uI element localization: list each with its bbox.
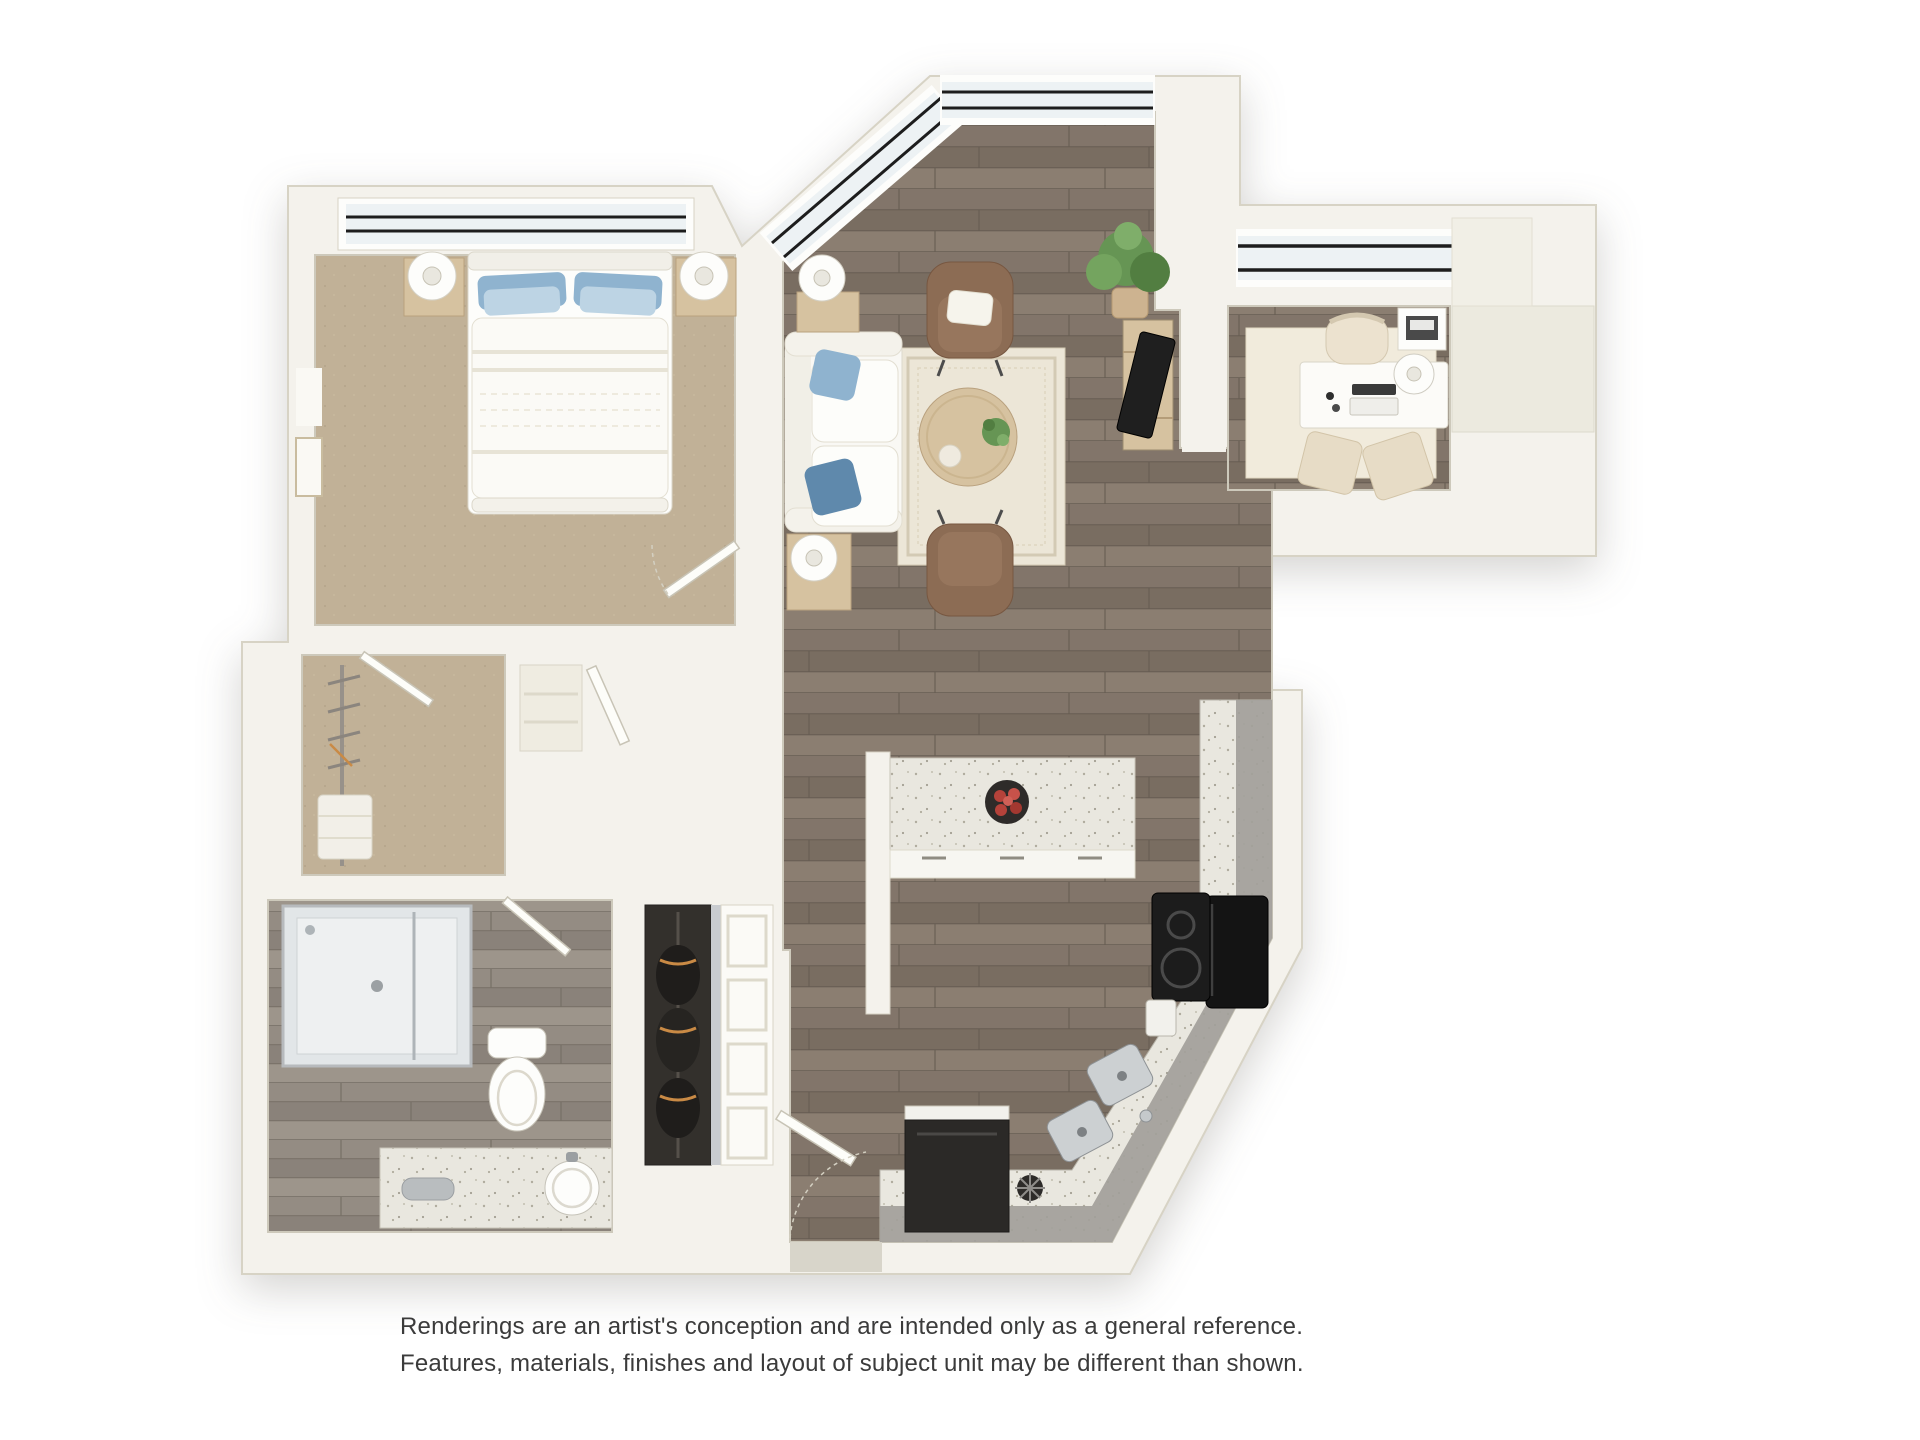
lamp-finial (423, 267, 441, 285)
toilet-tank (488, 1028, 546, 1058)
vanity (380, 1148, 612, 1228)
bedroom (296, 198, 739, 625)
printer-stand (1398, 308, 1446, 350)
glass-shower (283, 906, 471, 1066)
den-wall-mass (1452, 306, 1594, 432)
disclaimer-line-1: Renderings are an artist's conception an… (400, 1308, 1520, 1345)
framed-art-icon (296, 368, 322, 426)
chair-seat (938, 532, 1002, 586)
media-console (1116, 320, 1176, 450)
toaster-icon (1146, 1000, 1176, 1036)
queen-bed (468, 252, 672, 514)
tufted-sofa (785, 332, 902, 532)
shower-head-icon (305, 925, 315, 935)
chair-seat (1326, 316, 1388, 364)
plant-foliage (1130, 252, 1170, 292)
interior-wall (1182, 112, 1226, 452)
paneled-closet-doors (721, 905, 773, 1165)
throw-pillow-blue (808, 348, 863, 403)
laptop-keyboard (1350, 398, 1398, 415)
floor-plan-rendering (0, 0, 1920, 1440)
framed-art-icon (296, 438, 322, 496)
drain-icon (1117, 1071, 1127, 1081)
lamp-finial (814, 270, 830, 286)
peninsula-wall (866, 752, 890, 1014)
disclaimer: Renderings are an artist's conception an… (400, 1308, 1520, 1382)
mug-icon (1326, 392, 1334, 400)
plant-foliage (1086, 254, 1122, 290)
laptop-screen (1352, 384, 1396, 395)
fruit-bowl (985, 780, 1029, 824)
headboard (468, 252, 672, 270)
plant-leaf (997, 434, 1009, 446)
toilet-icon (488, 1028, 546, 1131)
walk-in-closet (302, 652, 505, 875)
plant-foliage (1114, 222, 1142, 250)
pillow-blue-light (483, 286, 560, 316)
hanging-clothes (656, 945, 700, 1138)
desk-chair (1326, 315, 1388, 364)
mirror-edge (711, 905, 721, 1165)
entry-threshold (790, 1242, 882, 1272)
disclaimer-line-2: Features, materials, finishes and layout… (400, 1345, 1520, 1382)
linen-closet-interior (520, 665, 582, 751)
plant-pot (1112, 288, 1148, 318)
floor-plan-page: Renderings are an artist's conception an… (0, 0, 1920, 1440)
plant-leaf (983, 419, 995, 431)
sofa-arm (785, 332, 902, 356)
faucet-icon (566, 1152, 578, 1162)
lamp-finial (695, 267, 713, 285)
window-glass (346, 204, 686, 244)
bathroom (268, 897, 612, 1232)
peninsula-base-cabinets (890, 850, 1135, 878)
sofa-back (785, 332, 811, 532)
chair-pillow (946, 290, 993, 326)
pillow-blue-light (579, 286, 656, 316)
lamp-finial (806, 550, 822, 566)
mug-icon (1332, 404, 1340, 412)
towel-icon (402, 1178, 454, 1200)
faucet-icon (1140, 1110, 1152, 1122)
dishwasher (905, 1106, 1009, 1232)
entry-closets (645, 905, 773, 1165)
tray-icon (939, 445, 961, 467)
bedroom-window (338, 198, 694, 250)
duvet (472, 318, 668, 498)
shower-drain-icon (371, 980, 383, 992)
footboard (472, 498, 668, 512)
lamp-finial (1407, 367, 1421, 381)
cooktop-range (1152, 893, 1268, 1008)
den-wall-mass (1452, 218, 1532, 306)
drain-icon (1077, 1127, 1087, 1137)
folded-linens (318, 795, 372, 859)
printer-paper (1410, 320, 1434, 330)
